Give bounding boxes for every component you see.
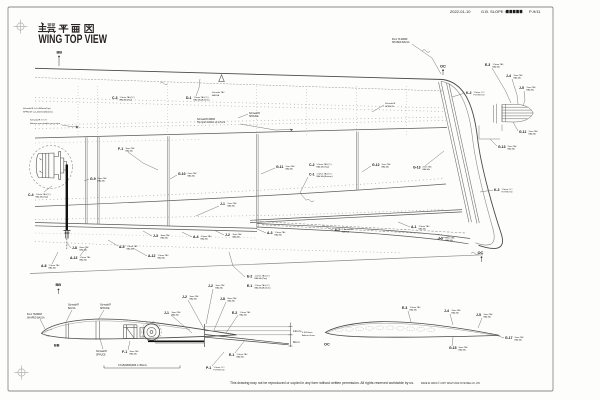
svg-text:BB: BB <box>54 344 60 348</box>
svg-text:A-13: A-13 <box>70 256 77 260</box>
svg-text:2022-01-10: 2022-01-10 <box>450 9 471 14</box>
svg-text:SPRUCE: SPRUCE <box>100 308 110 310</box>
svg-text:Schwalz/R: Schwalz/R <box>249 113 260 115</box>
svg-text:SPRUCE: SPRUCE <box>249 116 259 118</box>
svg-text:C-3: C-3 <box>112 96 118 100</box>
svg-text:P-9/11: P-9/11 <box>529 9 541 14</box>
svg-text:BALSA: BALSA <box>126 149 134 152</box>
svg-text:Schwalz/R #####: Schwalz/R ##### <box>30 120 48 122</box>
svg-text:SHAPED BALSA: SHAPED BALSA <box>27 317 45 320</box>
svg-text:Schwalz/R: Schwalz/R <box>100 305 111 307</box>
svg-text:Schwalz/R: Schwalz/R <box>68 305 79 307</box>
svg-text:BALSA: BALSA <box>228 299 236 302</box>
svg-text:SHAPED BALSA: SHAPED BALSA <box>392 41 410 44</box>
svg-text:J-4: J-4 <box>444 309 449 313</box>
svg-text:D-1: D-1 <box>186 96 192 100</box>
svg-text:BALSA: BALSA <box>158 256 166 259</box>
svg-text:12mm: 12mm <box>293 329 302 333</box>
svg-text:BALSA: BALSA <box>342 230 350 233</box>
svg-text:BALSA: BALSA <box>49 266 57 269</box>
svg-text:BALSA: BALSA <box>452 311 460 314</box>
svg-text:G-11: G-11 <box>519 130 526 134</box>
svg-text:OC: OC <box>324 343 330 347</box>
svg-text:4.6/4.8mm: 4.6/4.8mm <box>302 332 313 334</box>
svg-text:BALSA: BALSA <box>484 315 492 318</box>
svg-text:A-6: A-6 <box>41 264 47 268</box>
svg-text:BALSA (Bottom): BALSA (Bottom) <box>255 286 271 289</box>
svg-text:BALSA: BALSA <box>212 94 220 97</box>
svg-text:Schwalz/R #####: Schwalz/R ##### <box>197 119 216 121</box>
svg-text:J-2: J-2 <box>182 295 187 299</box>
svg-text:A-3: A-3 <box>267 231 273 235</box>
svg-text:F-1: F-1 <box>122 350 127 354</box>
svg-text:J-4: J-4 <box>506 74 511 78</box>
svg-text:BALSA: BALSA <box>161 236 169 239</box>
svg-text:J-5: J-5 <box>519 86 524 90</box>
svg-text:E-1: E-1 <box>229 353 234 357</box>
svg-text:A-5: A-5 <box>119 245 125 249</box>
svg-text:BALSA: BALSA <box>216 286 224 289</box>
svg-text:BALSA: BALSA <box>514 76 522 79</box>
svg-text:8mm TA#####: 8mm TA##### <box>27 313 43 316</box>
svg-text:BALSA: BALSA <box>275 233 283 236</box>
svg-text:G-11: G-11 <box>276 165 283 169</box>
svg-text:0.6x5(####)### L=66mm: 0.6x5(####)### L=66mm <box>118 363 147 367</box>
svg-text:G-10: G-10 <box>178 172 186 176</box>
svg-text:BALSA: BALSA <box>201 237 209 240</box>
svg-text:A-1: A-1 <box>411 225 417 229</box>
svg-text:A-12: A-12 <box>148 254 155 258</box>
svg-text:BALSA: BALSA <box>68 307 76 310</box>
svg-text:K-2: K-2 <box>494 188 500 192</box>
svg-text:Schwalz TA#: Schwalz TA# <box>212 91 225 94</box>
svg-text:C-2: C-2 <box>309 163 315 167</box>
svg-text:Bottom spar doubler up to here: Bottom spar doubler up to here <box>30 122 61 125</box>
svg-text:BALSA: BALSA <box>190 297 198 300</box>
svg-text:J-5: J-5 <box>476 313 481 317</box>
svg-text:J-3: J-3 <box>153 234 158 238</box>
svg-text:BALSA: BALSA <box>98 179 106 182</box>
svg-text:K-2: K-2 <box>466 91 472 95</box>
svg-text:BALSA: BALSA <box>188 174 196 177</box>
svg-text:BALSA: BALSA <box>527 88 535 91</box>
svg-text:BALSA: BALSA <box>237 355 245 358</box>
svg-text:G-13: G-13 <box>413 166 421 170</box>
svg-text:PLYWOOD: PLYWOOD <box>502 191 513 193</box>
svg-text:BALSA (Top): BALSA (Top) <box>255 277 268 280</box>
svg-text:BALSA: BALSA <box>130 352 138 355</box>
svg-text:G-12: G-12 <box>372 163 380 167</box>
svg-text:PLYWOOD: PLYWOOD <box>214 369 225 371</box>
svg-text:BALSA: BALSA <box>423 168 431 171</box>
svg-text:BALSA: BALSA <box>382 165 390 168</box>
svg-text:E-1: E-1 <box>247 284 252 288</box>
svg-text:A-4: A-4 <box>193 235 199 239</box>
svg-text:E-3: E-3 <box>485 63 490 67</box>
svg-text:J-1: J-1 <box>164 311 169 315</box>
svg-text:SPRUCE: SPRUCE <box>385 106 395 108</box>
svg-text:BALSA: BALSA <box>80 258 88 261</box>
svg-text:G-15: G-15 <box>449 346 457 350</box>
svg-text:G.B. SLOPE HI: G.B. SLOPE HI <box>481 9 509 14</box>
svg-text:BALSA: BALSA <box>127 247 135 250</box>
svg-text:BALSA: BALSA <box>80 248 88 251</box>
svg-text:J-8: J-8 <box>72 246 77 250</box>
svg-text:BALSA (Bottom): BALSA (Bottom) <box>317 175 333 178</box>
svg-text:BALSA: BALSA <box>529 132 537 135</box>
svg-text:G-17: G-17 <box>505 336 513 340</box>
svg-text:BALSA (Bottom): BALSA (Bottom) <box>194 98 210 101</box>
svg-text:BALSA (Top): BALSA (Top) <box>120 98 133 101</box>
svg-text:F-1: F-1 <box>118 147 123 151</box>
svg-text:8mm: 8mm <box>293 340 300 344</box>
svg-text:PLYWOOD: PLYWOOD <box>474 94 485 96</box>
svg-text:BALSA: BALSA <box>172 313 180 316</box>
svg-text:BALSA: BALSA <box>419 227 427 230</box>
svg-text:J-2: J-2 <box>225 233 230 237</box>
svg-text:J-1: J-1 <box>220 202 225 206</box>
svg-text:G-9: G-9 <box>90 177 96 181</box>
svg-text:BALSA: BALSA <box>286 167 294 170</box>
svg-text:E-3: E-3 <box>402 306 407 310</box>
svg-text:G-13: G-13 <box>498 145 506 149</box>
svg-text:OC: OC <box>440 64 446 69</box>
svg-text:C-4: C-4 <box>28 193 34 197</box>
svg-text:J-8: J-8 <box>220 297 225 301</box>
svg-text:C-1: C-1 <box>309 173 315 177</box>
svg-text:BALSA: BALSA <box>228 204 236 207</box>
svg-text:BALSA (Top): BALSA (Top) <box>36 195 49 198</box>
svg-text:BALSA: BALSA <box>446 239 454 242</box>
svg-text:SPRUCE L=1,460mm(Bottom): SPRUCE L=1,460mm(Bottom) <box>23 111 53 114</box>
svg-text:BALSA: BALSA <box>515 338 523 341</box>
svg-text:Schwalz/R: Schwalz/R <box>385 103 396 105</box>
svg-text:P-1: P-1 <box>206 366 211 370</box>
svg-text:OC: OC <box>478 250 484 255</box>
svg-text:BALSA: BALSA <box>410 308 418 311</box>
svg-text:J-2: J-2 <box>208 284 213 288</box>
svg-text:8mm TA #####: 8mm TA ##### <box>392 38 408 41</box>
svg-text:BALSA: BALSA <box>493 65 501 68</box>
svg-text:SPRUCE: SPRUCE <box>96 355 106 357</box>
svg-text:E-2: E-2 <box>247 275 252 279</box>
svg-text:BB: BB <box>57 50 63 55</box>
svg-text:Aileron throw: Aileron throw <box>302 334 315 337</box>
svg-text:Schwalz/R: Schwalz/R <box>96 351 107 353</box>
svg-text:This drawing may not be reprod: This drawing may not be reproduced or co… <box>230 381 414 385</box>
svg-text:E-2: E-2 <box>232 311 237 315</box>
svg-text:BALSA: BALSA <box>508 147 516 150</box>
svg-text:WING TOP VIEW: WING TOP VIEW <box>39 34 108 47</box>
svg-text:Schwalz/R L=1,480mm(Top): Schwalz/R L=1,480mm(Top) <box>23 108 51 110</box>
svg-text:BALSA (Top): BALSA (Top) <box>317 165 330 168</box>
svg-text:A-2: A-2 <box>335 228 341 232</box>
svg-text:BALSA: BALSA <box>233 235 241 238</box>
svg-text:BB: BB <box>56 282 62 287</box>
svg-text:Top spar doubler up to here: Top spar doubler up to here <box>197 121 226 124</box>
svg-text:BALSA: BALSA <box>240 313 248 316</box>
svg-text:BALSA: BALSA <box>459 348 467 351</box>
svg-text:MADE IN JAPAN © COPY RIGHT 20: MADE IN JAPAN © COPY RIGHT 2022 OK MODEL… <box>421 381 480 385</box>
